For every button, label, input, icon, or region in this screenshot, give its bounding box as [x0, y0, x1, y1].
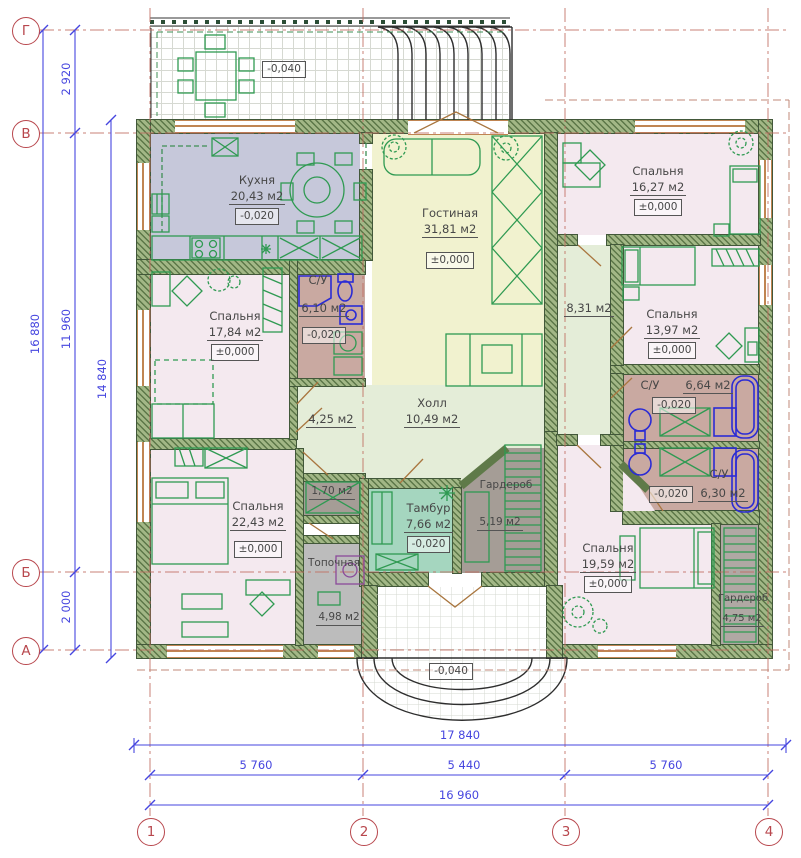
porch-steps — [357, 587, 567, 720]
dim-bottom-seg-3: 5 760 — [626, 758, 706, 772]
label-living: Гостиная 31,81 м2 ±0,000 — [390, 205, 510, 269]
floor-plan-sheet: Кухня 20,43 м2 -0,020 Гостиная 31,81 м2 … — [0, 0, 801, 858]
label-bath-e-bot-name: С/У — [700, 466, 738, 482]
label-bath-w-name: С/У — [298, 272, 338, 288]
label-corridor-e: 8,31 м2 — [558, 300, 620, 317]
linework-layer — [0, 0, 801, 858]
label-wardrobe-se-name: Гардероб — [711, 592, 775, 606]
label-wardrobe-c-area: 5,19 м2 — [465, 515, 535, 531]
label-corridor-w: 4,25 м2 — [300, 411, 362, 428]
elev-tambour: -0,020 — [407, 536, 451, 553]
label-wardrobe-se-area: 4,75 м2 — [712, 612, 772, 627]
label-bath-e-top-elev: -0,020 — [644, 394, 704, 414]
dim-left-seg-mid: 11 960 — [59, 299, 73, 359]
label-terrace-elev: -0,040 — [252, 58, 316, 78]
axis-row-v: В — [12, 120, 40, 148]
label-porch-elev: -0,040 — [419, 660, 483, 680]
label-boiler-name: Топочная — [298, 556, 370, 571]
elev-kitchen: -0,020 — [235, 208, 279, 225]
label-kitchen: Кухня 20,43 м2 -0,020 — [197, 172, 317, 225]
terrace-railing — [150, 18, 510, 118]
bedsw-furniture-icon — [182, 580, 290, 637]
dim-bottom-seg-1: 5 760 — [216, 758, 296, 772]
dim-left-overall: 16 880 — [28, 304, 42, 364]
elev-living: ±0,000 — [426, 252, 475, 269]
toilet-icon — [338, 274, 353, 301]
axis-row-b: Б — [12, 559, 40, 587]
axis-col-3: 3 — [552, 818, 580, 846]
label-bath-e-top-area: 6,64 м2 — [672, 377, 744, 394]
dim-left-seg-top: 2 920 — [59, 49, 73, 109]
label-wardrobe-c-name: Гардероб — [468, 478, 544, 493]
canopy-ribs — [378, 27, 512, 120]
dim-bottom-seg-2: 5 440 — [424, 758, 504, 772]
label-bedroom-ne: Спальня 16,27 м2 ±0,000 — [598, 163, 718, 216]
bede-bed-icon — [622, 247, 695, 300]
label-hall: Холл 10,49 м2 — [372, 395, 492, 428]
elev-bedroom-ne: ±0,000 — [634, 199, 683, 216]
label-bath-e-bot-area: 6,30 м2 — [690, 485, 756, 502]
bede-shelf-icon — [712, 249, 759, 266]
label-bedroom-e: Спальня 13,97 м2 ±0,000 — [612, 306, 732, 359]
terrace-table-icon — [178, 35, 254, 117]
pedestal-sink-icons — [629, 409, 651, 475]
dim-bottom-overall: 17 840 — [410, 728, 510, 742]
label-tambour: Тамбур 7,66 м2 -0,020 — [386, 500, 471, 553]
label-bath-e-top-name: С/У — [634, 377, 666, 393]
boiler-eq-icon — [318, 592, 340, 605]
elev-bedroom-sw: ±0,000 — [234, 541, 283, 558]
bedw-desk-icon — [152, 272, 202, 306]
dim-bottom-inner: 16 960 — [409, 788, 509, 802]
bedsw-closet-icon — [175, 448, 247, 468]
label-boiler-area: 4,98 м2 — [306, 610, 372, 626]
label-bedroom-w: Спальня 17,84 м2 ±0,000 — [175, 308, 295, 361]
axis-col-1: 1 — [137, 818, 165, 846]
axis-row-g: Г — [12, 17, 40, 45]
axis-row-a: А — [12, 637, 40, 665]
bedne-bed-icon — [714, 166, 760, 236]
bedw-bed-icon — [152, 360, 214, 438]
label-bedroom-se: Спальня 19,59 м2 ±0,000 — [548, 540, 668, 593]
elev-bedroom-se: ±0,000 — [584, 576, 633, 593]
living-cabinet-icon — [446, 334, 542, 386]
dim-left-seg-bot: 2 000 — [59, 577, 73, 637]
label-bath-w-area: 6,10 м2 — [288, 300, 360, 317]
label-bath-w-elev: -0,020 — [290, 324, 358, 344]
label-bedroom-sw: Спальня 22,43 м2 ±0,000 — [198, 498, 318, 558]
axis-col-4: 4 — [755, 818, 783, 846]
elev-bedroom-e: ±0,000 — [648, 342, 697, 359]
axis-col-2: 2 — [350, 818, 378, 846]
dim-left-inner: 14 840 — [95, 349, 109, 409]
elev-bedroom-w: ±0,000 — [211, 344, 260, 361]
